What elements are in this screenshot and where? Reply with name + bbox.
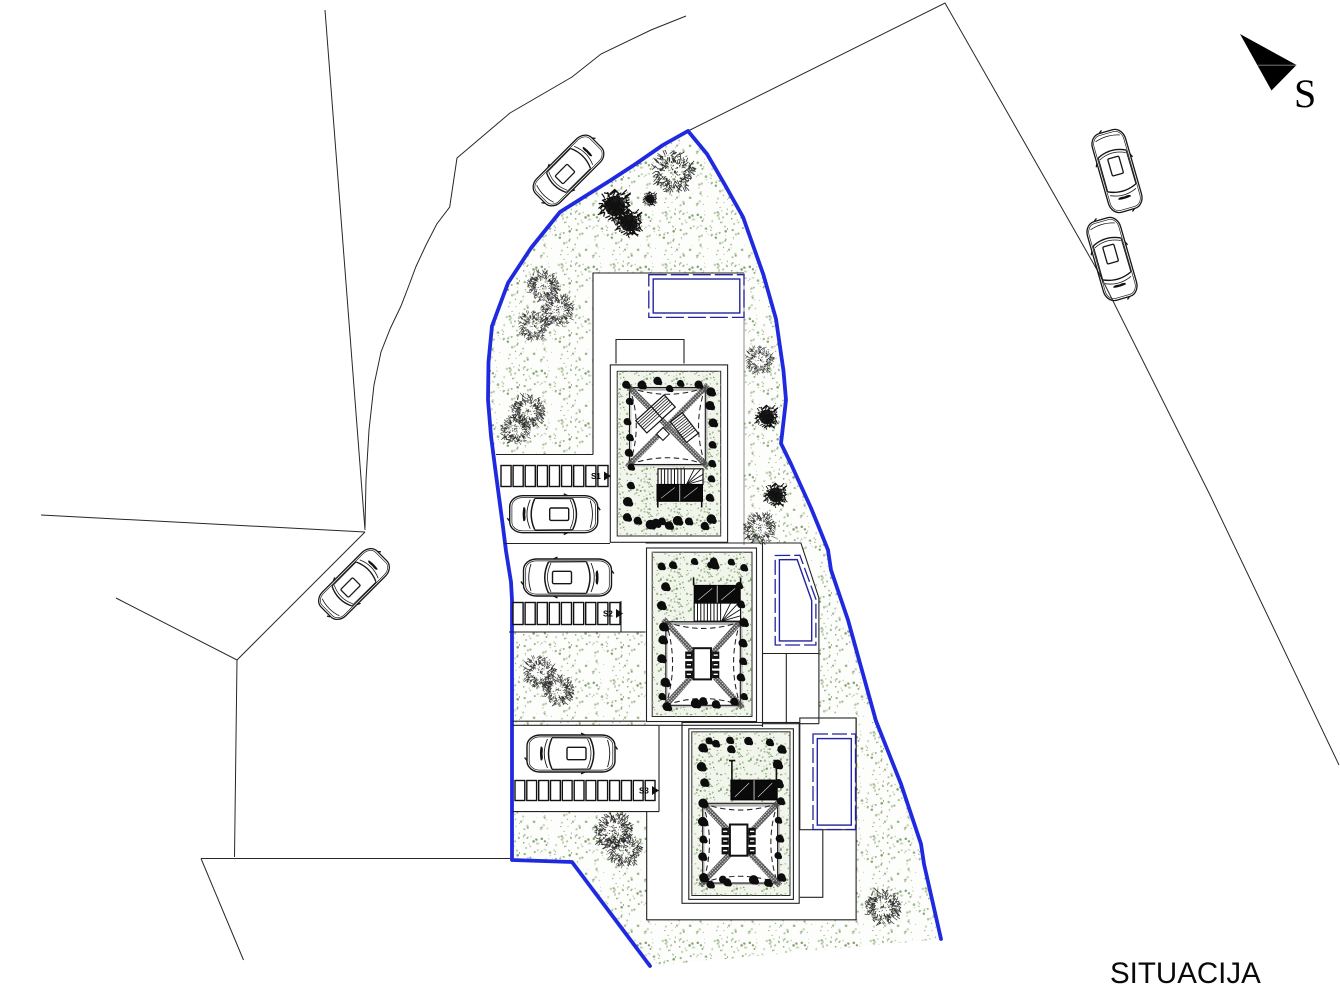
svg-text:S2: S2 xyxy=(603,610,613,619)
svg-text:S1: S1 xyxy=(591,472,601,481)
svg-text:SITUACIJA: SITUACIJA xyxy=(1110,957,1261,989)
svg-text:S: S xyxy=(1294,71,1316,116)
svg-text:S3: S3 xyxy=(639,787,649,796)
